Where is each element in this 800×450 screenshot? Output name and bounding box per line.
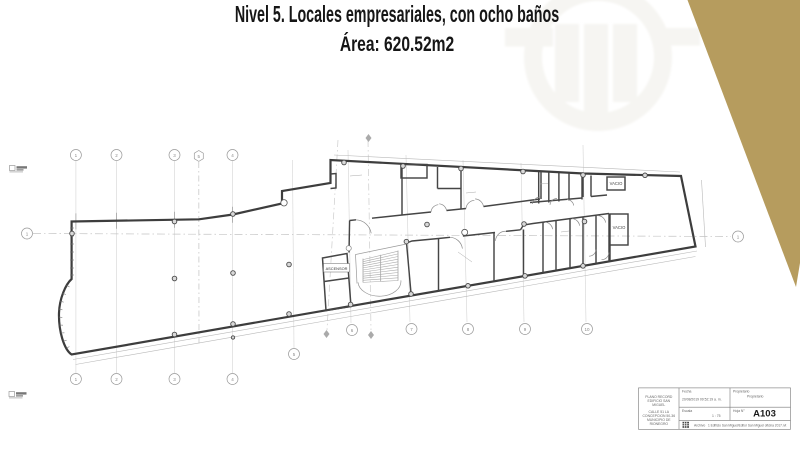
svg-text:VACIO: VACIO xyxy=(610,181,623,186)
svg-text:Escala: Escala xyxy=(682,409,692,413)
svg-text:1 : 75: 1 : 75 xyxy=(712,414,721,418)
svg-text:MIGUEL: MIGUEL xyxy=(652,403,665,407)
svg-text:Hoja N°: Hoja N° xyxy=(733,409,745,413)
svg-text:Nivel 5. Locales empresariales: Nivel 5. Locales empresariales, con ocho… xyxy=(235,3,559,28)
svg-text:Propietario: Propietario xyxy=(733,390,750,394)
svg-text:RIONEGRO: RIONEGRO xyxy=(650,422,669,426)
svg-text:VACIO: VACIO xyxy=(613,225,626,230)
svg-text:10: 10 xyxy=(584,327,590,332)
svg-text:20/08/2019 09:52:19 a. m.: 20/08/2019 09:52:19 a. m. xyxy=(682,398,722,402)
svg-text:ASCENSOR: ASCENSOR xyxy=(326,266,348,271)
svg-text:A103: A103 xyxy=(753,409,776,420)
svg-text:Archivo: Archivo xyxy=(694,424,705,428)
svg-text:Fecha: Fecha xyxy=(682,390,692,394)
svg-text:Propietario: Propietario xyxy=(747,395,764,399)
svg-text:Área: 620.52m2: Área: 620.52m2 xyxy=(340,32,454,56)
svg-text:1 Edificio San Miguel/Editor S: 1 Edificio San Miguel/Editor San Miguel … xyxy=(708,424,786,428)
